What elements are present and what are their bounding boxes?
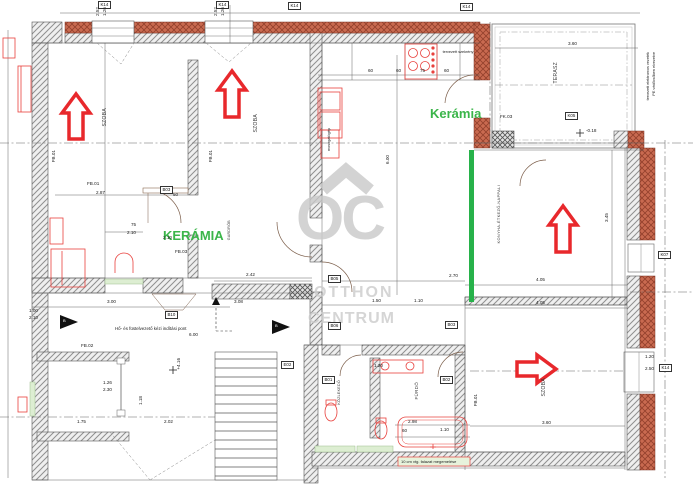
plan-drawing bbox=[0, 0, 693, 500]
green-accent-line bbox=[469, 150, 474, 302]
terrace-outline bbox=[492, 24, 635, 148]
arrow-up-living bbox=[549, 206, 577, 252]
floor-plan: OC OTTHON CENTRUM Kerámia KERÁMIA SZOBA … bbox=[0, 0, 693, 500]
staircase bbox=[215, 352, 277, 480]
arrow-up-room2 bbox=[218, 71, 246, 117]
arrow-right-bedroom bbox=[517, 355, 556, 383]
arrow-up-room1 bbox=[62, 94, 90, 139]
reference-lines bbox=[8, 5, 644, 480]
centerlines bbox=[0, 22, 693, 480]
